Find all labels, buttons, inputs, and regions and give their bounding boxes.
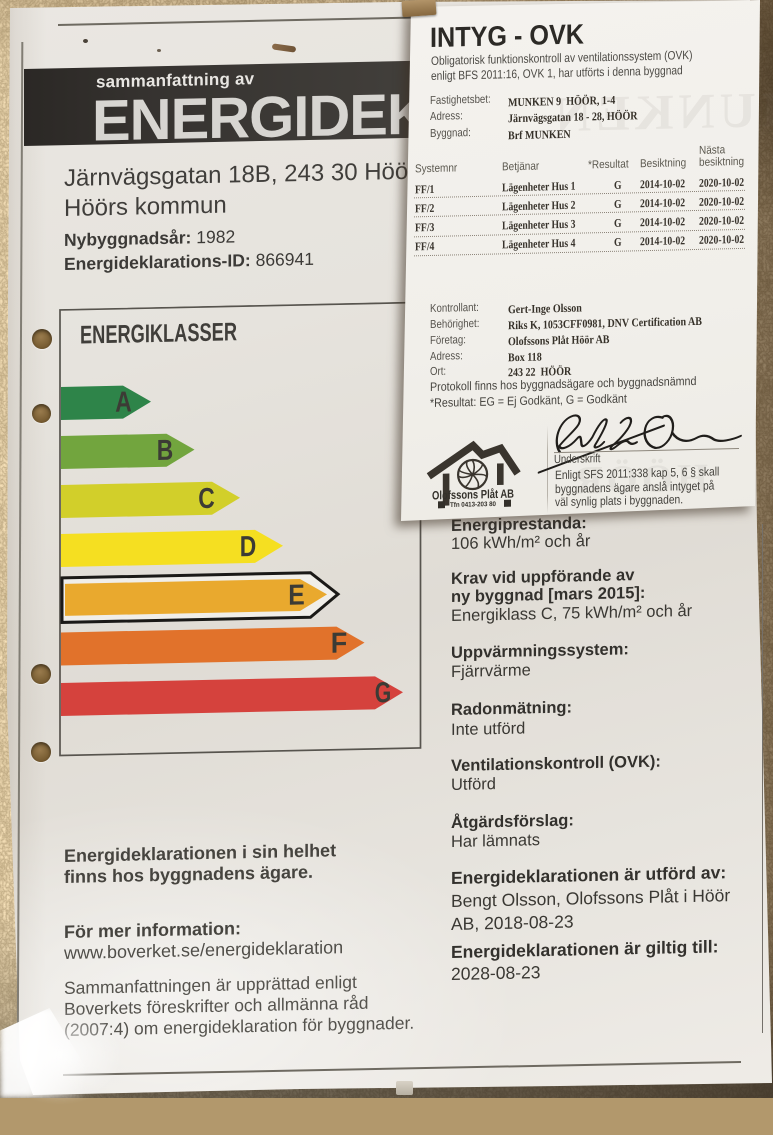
svg-text:B: B: [157, 435, 174, 467]
svg-text:Tfn 0413-203 80: Tfn 0413-203 80: [450, 501, 496, 509]
svg-text:E: E: [288, 579, 305, 611]
svg-text:A: A: [115, 386, 132, 418]
svg-text:Olofssons Plåt AB: Olofssons Plåt AB: [432, 487, 514, 503]
svg-text:ENERGIKLASSER: ENERGIKLASSER: [80, 318, 237, 349]
svg-text:F: F: [331, 627, 348, 659]
svg-text:G: G: [375, 677, 392, 709]
svg-text:D: D: [240, 531, 257, 563]
svg-text:C: C: [198, 483, 215, 515]
